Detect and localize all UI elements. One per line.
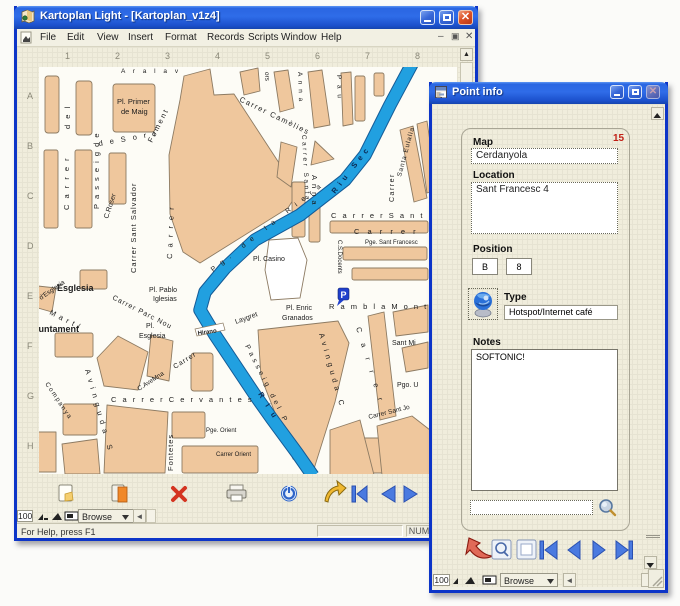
svg-text:P: P: [341, 290, 347, 300]
svg-text:Pge. Sant Francesc: Pge. Sant Francesc: [365, 240, 418, 246]
svg-text:ors: ors: [263, 72, 270, 82]
svg-text:P a u: P a u: [335, 75, 343, 100]
svg-text:Granados: Granados: [282, 315, 313, 322]
svg-text:Carrer: Carrer: [389, 173, 396, 202]
svg-text:Iglesias: Iglesias: [153, 296, 177, 303]
svg-text:Riu Sec: Riu Sec: [329, 143, 372, 195]
svg-text:Fontetes: Fontetes: [166, 434, 175, 471]
svg-text:Laygret: Laygret: [234, 311, 258, 326]
svg-text:A n n a: A n n a: [296, 72, 304, 103]
svg-text:Pl. Enric: Pl. Enric: [286, 305, 313, 312]
svg-text:Companya: Companya: [43, 381, 73, 421]
svg-text:de Maig: de Maig: [121, 107, 148, 116]
svg-text:C a r r e r: C a r r e r: [62, 156, 71, 210]
svg-text:A r a l a v: A r a l a v: [121, 68, 181, 75]
svg-text:Anna: Anna: [310, 175, 319, 209]
svg-text:C a r r e r: C a r r e r: [165, 205, 176, 259]
svg-text:C a r r e r: C a r r e r: [354, 227, 419, 236]
svg-text:Esglesia: Esglesia: [139, 333, 166, 340]
svg-text:Pl. Casino: Pl. Casino: [253, 256, 285, 263]
svg-text:C.S.Docents: C.S.Docents: [336, 240, 342, 274]
svg-text:Pge. Orient: Pge. Orient: [206, 428, 237, 434]
svg-text:Carrer Sant Salvador: Carrer Sant Salvador: [129, 183, 138, 273]
svg-text:C.Roser: C.Roser: [103, 192, 118, 219]
svg-text:Pl. Primer: Pl. Primer: [117, 97, 150, 106]
svg-text:d e l: d e l: [63, 105, 72, 129]
svg-text:Carrer Orient: Carrer Orient: [216, 452, 251, 458]
svg-text:Sant Mi: Sant Mi: [392, 340, 416, 347]
svg-text:Pgo. U: Pgo. U: [397, 382, 418, 389]
svg-text:Pl. Pablo: Pl. Pablo: [149, 287, 177, 294]
svg-text:C a r r e r C e r v a n t e s: C a r r e r C e r v a n t e s: [111, 395, 254, 404]
svg-text:C a r r e r S a n t L l: C a r r e r S a n t L l: [331, 211, 442, 220]
svg-text:juntament: juntament: [39, 324, 79, 334]
svg-text:Pl.: Pl.: [146, 323, 154, 330]
